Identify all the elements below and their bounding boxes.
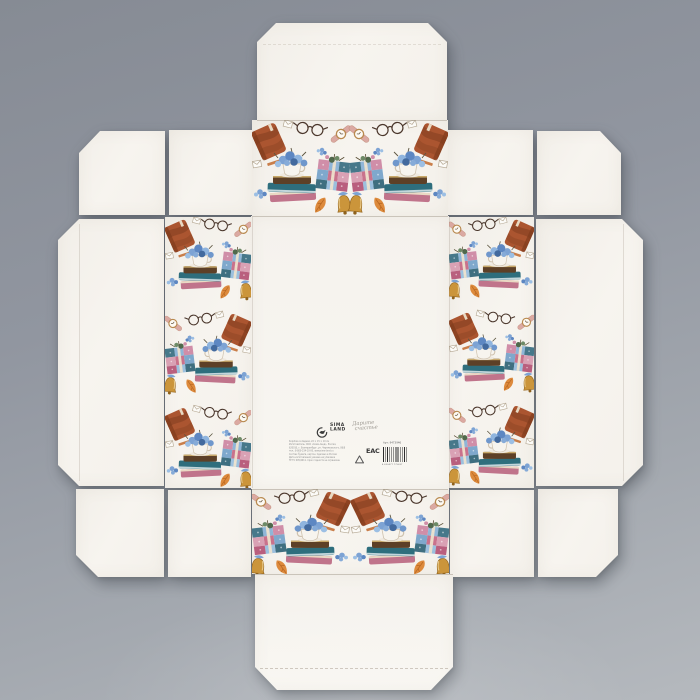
perforation-line [260,668,448,669]
fold-line [449,217,450,488]
pattern-motif-tile [449,310,534,393]
brand-word-2: LAND [330,427,346,432]
watercolor-pattern-bottom [252,489,449,574]
dust-flap-upper-right-outer [537,131,621,215]
fold-line [79,224,80,481]
article-number: Арт: 9473946 [383,441,401,444]
fine-print: Коробка складная, 22 × 15 × 10 см Изгото… [289,440,345,462]
dust-flap-lower-right-inner [450,490,534,577]
watercolor-pattern-top [252,120,448,216]
box-back-panel-printed [252,489,449,574]
fine-print-line: ТР ТС 005/2011. Срок годности не огранич… [289,459,345,462]
fold-line [252,489,448,490]
pattern-motif-tile [449,403,534,486]
box-side-panel-left-printed [165,217,251,488]
fold-line [623,224,624,481]
pattern-motif-tile [165,217,251,301]
pattern-motif-tile [350,489,449,574]
dust-flap-lower-right-outer [538,489,618,577]
pattern-motif-tile [252,120,353,215]
barcode-digits: 4 690477 775437 [382,463,403,465]
barcode [383,447,407,462]
fold-line [255,574,453,575]
brand-name: SIMALAND [330,423,346,432]
recycle-icon [355,449,364,468]
eac-certification-mark: ЕАС [366,448,379,455]
box-side-flap-left [58,219,164,486]
dust-flap-upper-right-inner [448,130,533,215]
fold-line [252,217,253,488]
pattern-motif-tile [165,311,251,395]
dust-flap-upper-left-outer [79,131,165,215]
dust-flap-lower-left-outer [76,489,164,577]
box-base-panel: SIMALAND Даритесчастье Коробка складная,… [251,216,449,489]
brand-tagline: Даритесчастье [352,420,378,431]
photo-background: SIMALAND Даритесчастье Коробка складная,… [0,0,700,700]
pattern-motif-tile [347,120,448,215]
pattern-motif-tile [252,489,351,574]
dust-flap-lower-left-inner [168,490,251,577]
watercolor-pattern-right [449,217,534,488]
print-info-block: SIMALAND Даритесчастье Коробка складная,… [289,422,407,474]
box-lid-tuck-flap-bottom [255,574,453,690]
unfolded-gift-box: SIMALAND Даритесчастье Коробка складная,… [0,0,700,700]
fold-line [252,216,448,217]
watercolor-pattern-left [165,217,251,488]
box-side-flap-right [536,219,643,486]
dust-flap-upper-left-inner [169,130,252,215]
perforation-line [263,44,441,45]
box-side-panel-right-printed [449,217,534,488]
box-front-panel-printed [252,120,448,216]
pattern-motif-tile [449,217,534,300]
pattern-motif-tile [165,405,251,488]
fold-line [257,120,447,121]
box-lid-tuck-flap-top [257,23,447,120]
